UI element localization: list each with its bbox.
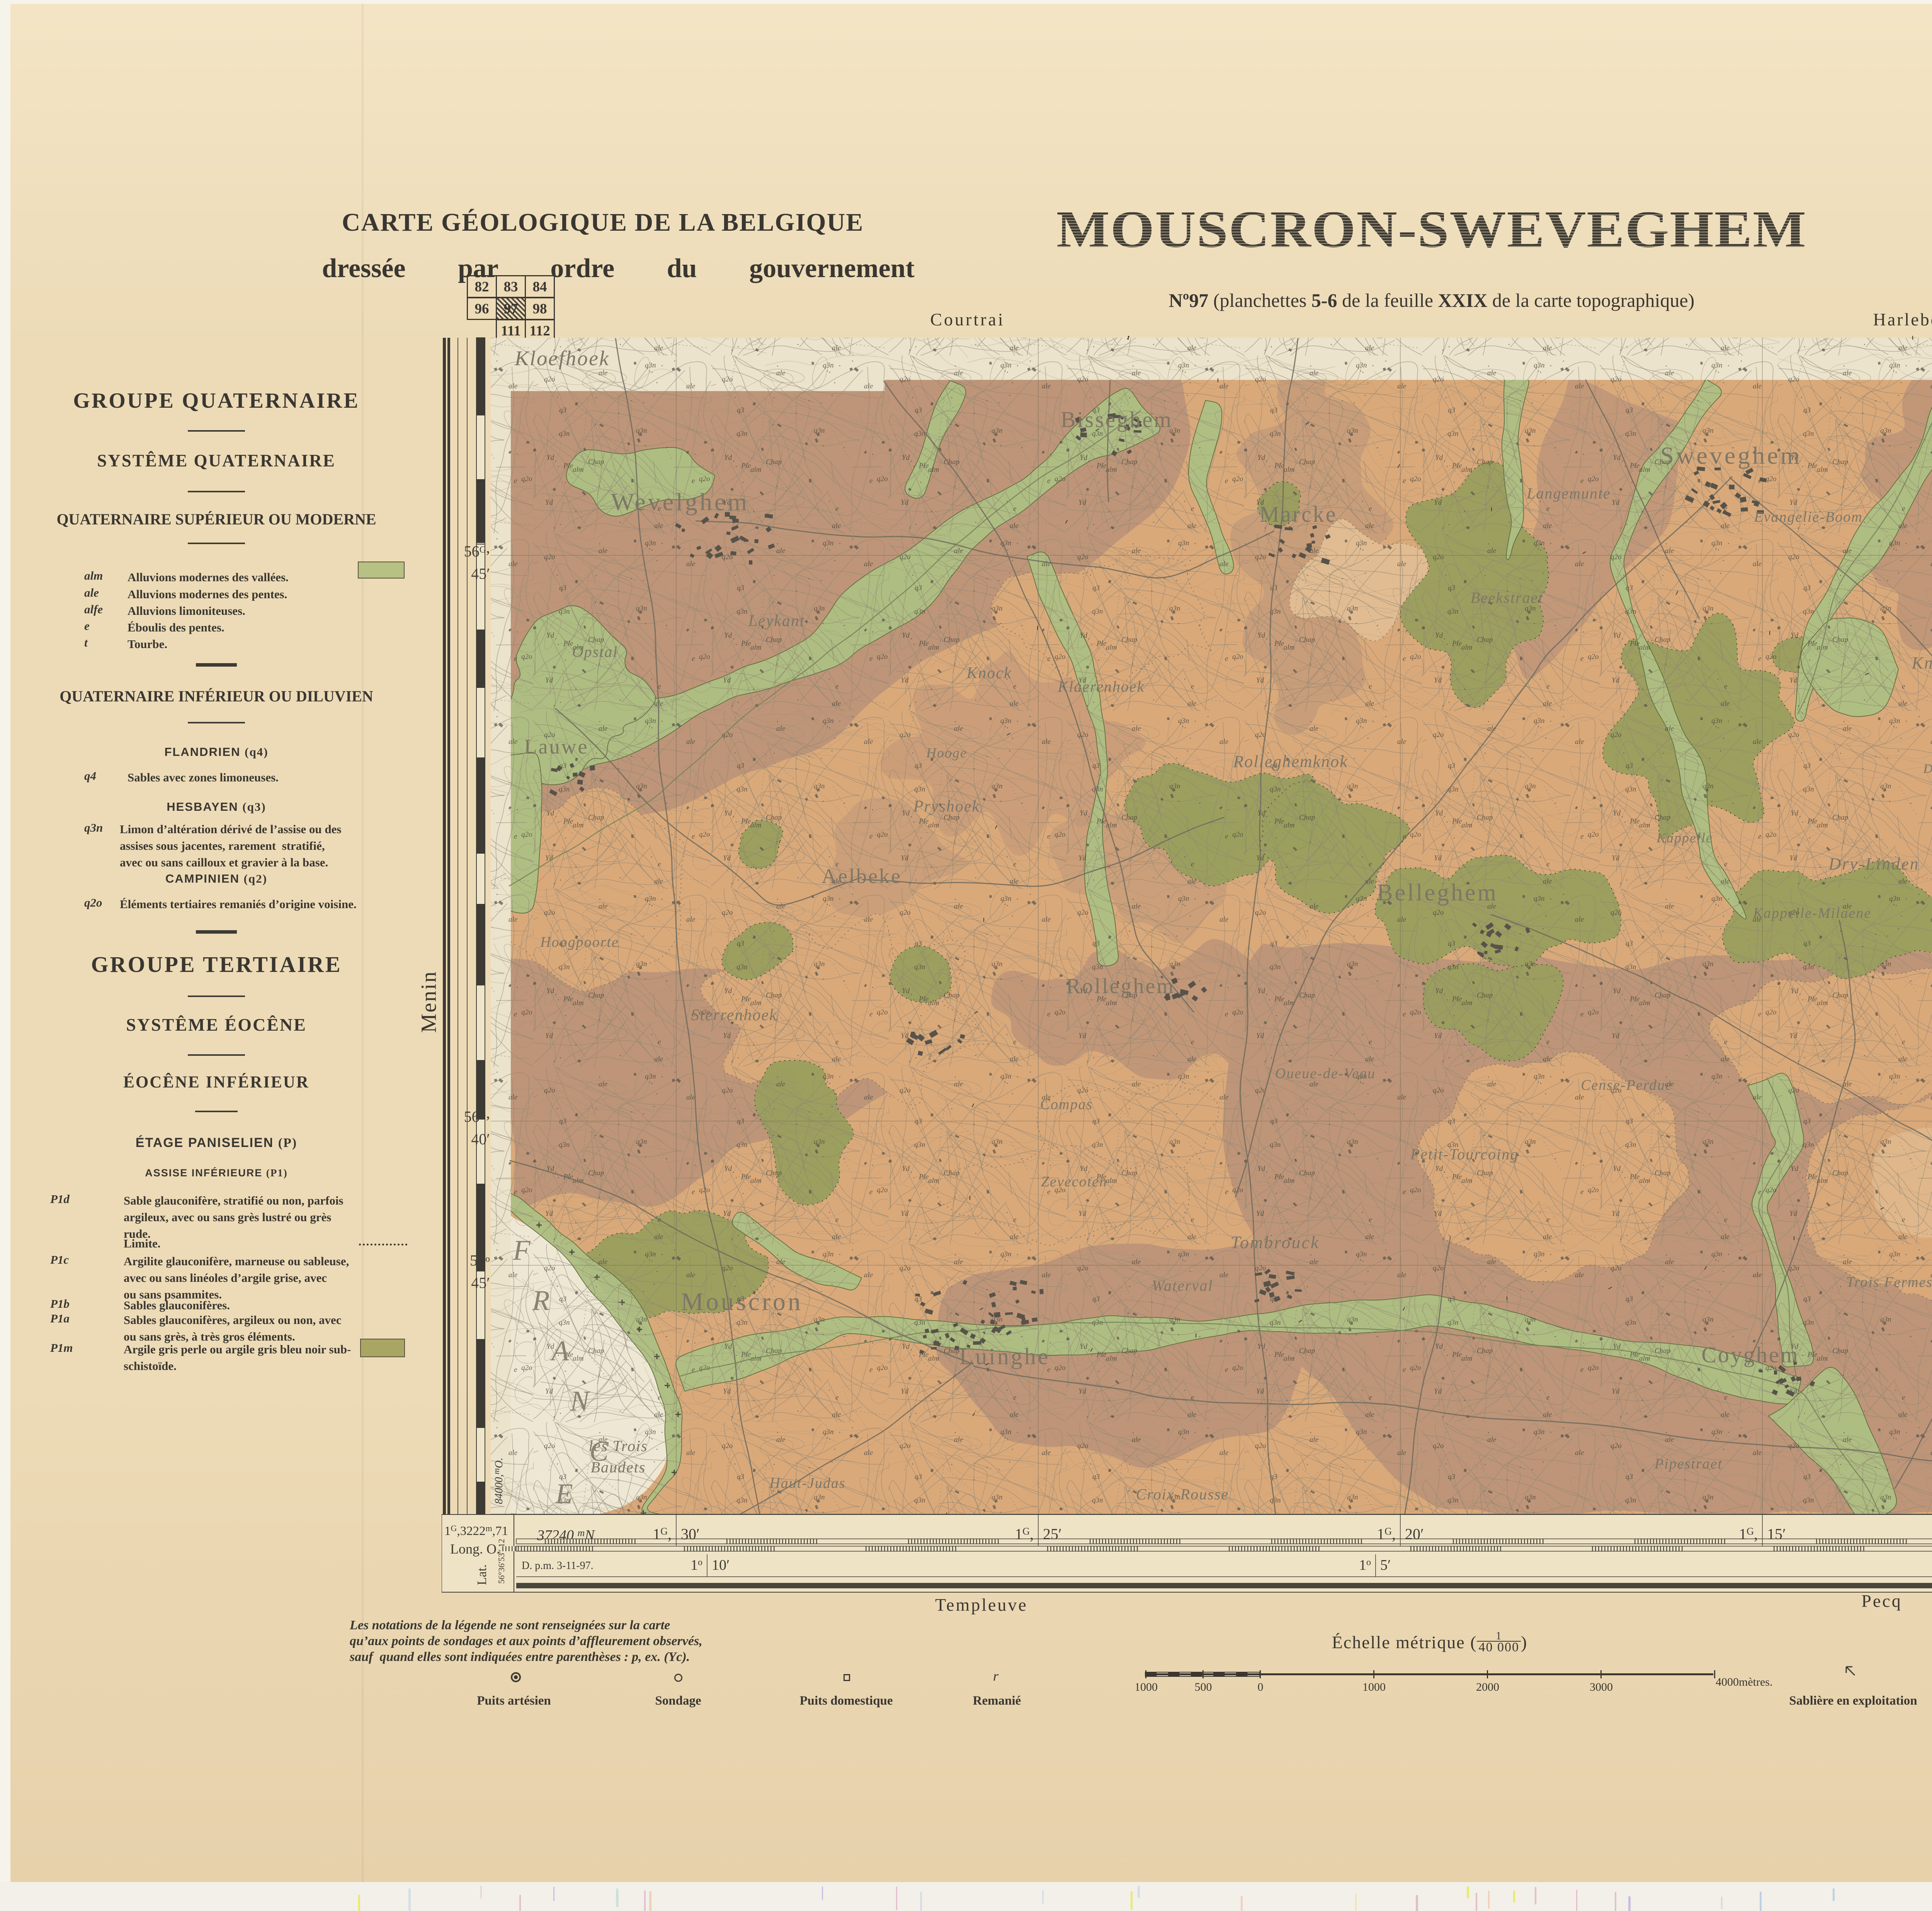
svg-text:Leykant: Leykant	[748, 612, 805, 630]
svg-text:50o: 50o	[470, 1252, 490, 1269]
svg-text:Luinghe: Luinghe	[959, 1344, 1050, 1369]
svg-text:Beekstraet: Beekstraet	[1471, 589, 1544, 606]
svg-text:Evangelie-Boom: Evangelie-Boom	[1753, 509, 1862, 525]
svg-text:Bisseghem: Bisseghem	[1061, 407, 1173, 432]
svg-text:Coyghem: Coyghem	[1701, 1342, 1799, 1367]
svg-text:Sweveghem: Sweveghem	[1660, 442, 1802, 469]
svg-text:F: F	[512, 1235, 531, 1266]
svg-text:Dries: Dries	[1923, 762, 1932, 776]
svg-text:Compas: Compas	[1040, 1096, 1093, 1113]
svg-text:Klaerenhoek: Klaerenhoek	[1058, 678, 1145, 695]
svg-text:4000mètres.: 4000mètres.	[1716, 1676, 1772, 1688]
svg-text:MOUSCRON-SWEVEGHEM: MOUSCRON-SWEVEGHEM	[1056, 200, 1807, 258]
svg-text:Belleghem: Belleghem	[1377, 880, 1498, 906]
svg-text:Rolleghemknok: Rolleghemknok	[1233, 752, 1348, 771]
svg-text:Tombrouck: Tombrouck	[1231, 1232, 1320, 1252]
svg-text:Zevecoten: Zevecoten	[1041, 1174, 1107, 1190]
svg-text:Knok: Knok	[1912, 653, 1932, 672]
svg-text:Pryshoek: Pryshoek	[913, 798, 980, 815]
svg-text:N: N	[570, 1385, 590, 1417]
svg-text:Kloefhoek: Kloefhoek	[514, 347, 610, 370]
svg-text:Wevelghem: Wevelghem	[611, 488, 749, 516]
svg-text:Mouscron: Mouscron	[681, 1288, 803, 1316]
svg-text:Lauwe: Lauwe	[524, 735, 589, 758]
svg-text:Langemunte: Langemunte	[1526, 485, 1611, 502]
svg-text:Trois Fermes: Trois Fermes	[1846, 1274, 1932, 1290]
svg-text:Cense-Perdue: Cense-Perdue	[1581, 1077, 1673, 1093]
svg-text:Sterrenhoek: Sterrenhoek	[691, 1006, 777, 1024]
svg-text:Rolleghem: Rolleghem	[1066, 974, 1175, 998]
svg-text:E: E	[555, 1478, 573, 1510]
svg-text:Lat.: Lat.	[475, 1564, 489, 1585]
svg-text:Oueue-de-Veau: Oueue-de-Veau	[1275, 1065, 1376, 1082]
svg-text:500: 500	[1195, 1681, 1212, 1693]
svg-text:Aelbeke: Aelbeke	[821, 864, 902, 888]
svg-text:R: R	[532, 1285, 549, 1317]
svg-text:C: C	[589, 1436, 609, 1467]
svg-text:1000: 1000	[1136, 1681, 1158, 1693]
svg-text:A: A	[549, 1335, 569, 1367]
svg-text:Opstal: Opstal	[572, 643, 618, 660]
svg-text:56°36′53″,12: 56°36′53″,12	[497, 1539, 506, 1584]
svg-text:Waterval: Waterval	[1152, 1277, 1213, 1294]
svg-text:45′: 45′	[471, 565, 490, 582]
svg-text:Kappelle: Kappelle	[1656, 830, 1713, 846]
svg-text:45′: 45′	[471, 1274, 490, 1292]
svg-text:Marcke: Marcke	[1259, 502, 1337, 527]
svg-text:Dry-Linden: Dry-Linden	[1828, 854, 1919, 873]
svg-text:84000,mO.: 84000,mO.	[492, 1458, 505, 1504]
svg-text:Hoogpoorte: Hoogpoorte	[540, 934, 619, 950]
svg-text:0: 0	[1258, 1681, 1264, 1693]
svg-text:D. p.m. 3-11-97.: D. p.m. 3-11-97.	[522, 1560, 594, 1572]
svg-text:1000: 1000	[1362, 1681, 1386, 1693]
svg-text:5′: 5′	[1380, 1557, 1391, 1573]
svg-text:Pipestraet: Pipestraet	[1654, 1456, 1723, 1472]
svg-text:10′: 10′	[712, 1557, 730, 1573]
svg-text:Petit-Tourcoing: Petit-Tourcoing	[1410, 1145, 1519, 1163]
svg-text:Haut-Judas: Haut-Judas	[769, 1475, 845, 1491]
svg-text:Knock: Knock	[966, 664, 1012, 682]
svg-text:Croix-Rousse: Croix-Rousse	[1136, 1486, 1229, 1503]
svg-text:3000: 3000	[1590, 1681, 1613, 1693]
svg-text:2000: 2000	[1476, 1681, 1499, 1693]
svg-text:40′: 40′	[471, 1130, 490, 1148]
svg-text:Hooge: Hooge	[926, 745, 967, 761]
svg-text:Kappelle-Milaene: Kappelle-Milaene	[1753, 905, 1871, 921]
